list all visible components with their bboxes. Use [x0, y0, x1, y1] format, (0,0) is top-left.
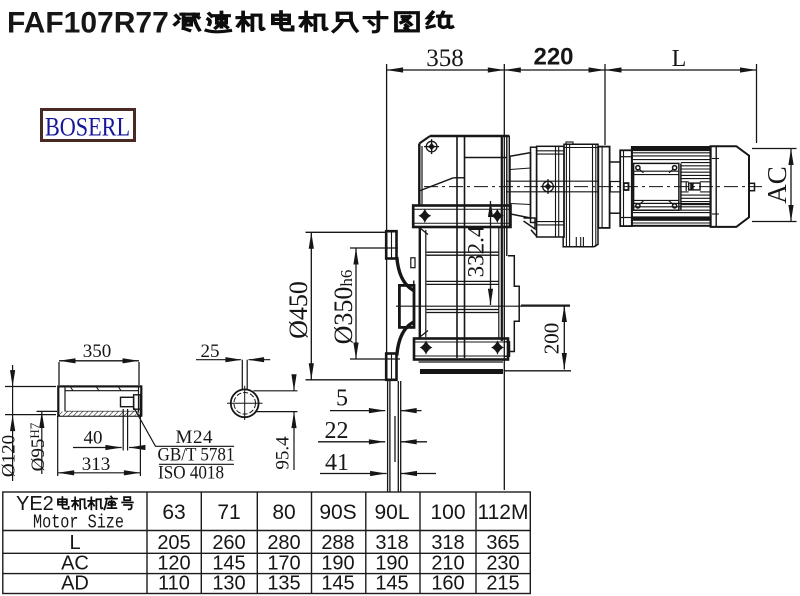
svg-text:ISO 4018: ISO 4018 [158, 464, 224, 484]
svg-text:25: 25 [201, 341, 220, 362]
svg-text:318: 318 [431, 532, 464, 554]
svg-text:190: 190 [321, 553, 354, 575]
svg-text:220: 220 [533, 44, 573, 71]
svg-text:Ø120: Ø120 [0, 435, 20, 477]
svg-text:AD: AD [61, 573, 89, 595]
svg-text:332.4: 332.4 [464, 225, 489, 277]
svg-text:71: 71 [217, 501, 240, 524]
svg-text:145: 145 [321, 573, 354, 595]
svg-text:41: 41 [325, 450, 349, 476]
svg-text:260: 260 [212, 532, 245, 554]
svg-text:160: 160 [431, 573, 464, 595]
svg-text:BOSERL: BOSERL [45, 113, 130, 142]
svg-text:170: 170 [267, 553, 300, 575]
svg-text:288: 288 [321, 532, 354, 554]
svg-text:Motor Size: Motor Size [33, 512, 124, 534]
svg-text:318: 318 [375, 532, 408, 554]
svg-text:358: 358 [426, 45, 464, 72]
svg-text:GB/T 5781: GB/T 5781 [158, 446, 235, 466]
svg-text:L: L [672, 46, 687, 72]
svg-text:FAF107R77: FAF107R77 [7, 7, 169, 40]
svg-text:63: 63 [162, 501, 185, 524]
svg-text:205: 205 [157, 532, 190, 554]
svg-text:22: 22 [325, 418, 349, 444]
svg-text:215: 215 [486, 573, 519, 595]
svg-text:AC: AC [762, 166, 792, 204]
svg-text:130: 130 [212, 573, 245, 595]
svg-text:350: 350 [83, 341, 112, 362]
svg-text:230: 230 [486, 553, 519, 575]
svg-text:200: 200 [540, 323, 564, 355]
svg-text:90L: 90L [374, 501, 409, 524]
svg-text:135: 135 [267, 573, 300, 595]
svg-text:280: 280 [267, 532, 300, 554]
svg-text:120: 120 [157, 553, 190, 575]
svg-text:Ø450: Ø450 [284, 281, 313, 339]
svg-text:5: 5 [336, 386, 348, 412]
svg-text:90S: 90S [319, 501, 356, 524]
svg-text:40: 40 [84, 428, 103, 449]
svg-text:313: 313 [82, 454, 111, 475]
svg-text:80: 80 [272, 501, 295, 524]
svg-text:190: 190 [375, 553, 408, 575]
svg-text:112M: 112M [478, 501, 529, 524]
svg-text:365: 365 [486, 532, 519, 554]
svg-text:145: 145 [212, 553, 245, 575]
svg-text:95.4: 95.4 [273, 436, 294, 470]
svg-text:210: 210 [431, 553, 464, 575]
svg-text:110: 110 [158, 573, 190, 595]
svg-text:100: 100 [430, 501, 465, 524]
svg-text:L: L [69, 532, 80, 554]
svg-text:145: 145 [375, 573, 408, 595]
svg-text:AC: AC [61, 553, 89, 575]
